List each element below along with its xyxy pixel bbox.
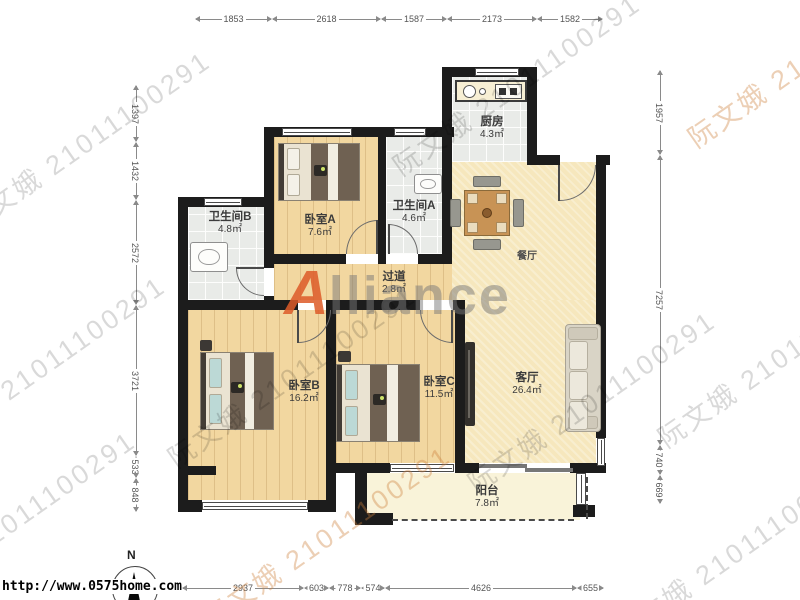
wall [178, 300, 298, 310]
wall [418, 254, 452, 264]
dimension-bottom: 2937 [182, 580, 304, 596]
bed-a [278, 143, 360, 201]
bedroom-a-door-leaf [376, 220, 378, 254]
dimension-left: 1397 [128, 85, 144, 142]
dimension-bottom: 778 [329, 580, 361, 596]
pillow [209, 358, 222, 387]
wall [178, 197, 188, 512]
room-label-balcony: 阳台7.8㎡ [452, 485, 522, 510]
floor-plan: 卫生间B4.8㎡ 卧室A7.6㎡ 卫生间A4.6㎡ 厨房4.3㎡ 餐厅 过道2.… [0, 0, 800, 600]
blanket-stripe [387, 365, 398, 441]
window [390, 464, 454, 472]
bedroom-b-door-leaf [297, 310, 299, 343]
chair [450, 199, 461, 227]
wall [178, 500, 202, 512]
dimension-right: 669 [652, 475, 668, 504]
pillow [345, 406, 358, 435]
wall [326, 300, 336, 512]
dimension-right: 740 [652, 445, 668, 475]
wall [573, 505, 595, 517]
room-label-kitchen: 厨房4.3㎡ [457, 116, 527, 141]
room-label-bedroom-b: 卧室B16.2㎡ [269, 380, 339, 405]
chair [473, 176, 501, 187]
room-label-hallway: 过道2.8㎡ [359, 271, 429, 296]
nightstand [338, 351, 351, 362]
blanket-stripe [245, 353, 254, 429]
sofa-cushion [569, 341, 588, 370]
bathroom-b-door-leaf [236, 267, 264, 269]
sofa-cushion [569, 371, 588, 400]
balcony-dashed-edge [586, 477, 588, 519]
sink-icon [463, 85, 476, 98]
watermark-text: 阮文娥 21011100291 [604, 450, 800, 600]
bed-decor [231, 382, 244, 393]
dimension-bottom: 574 [361, 580, 385, 596]
dimension-left: 3721 [128, 305, 144, 456]
nightstand [200, 340, 212, 351]
room-label-bathroom-a: 卫生间A4.6㎡ [379, 200, 449, 225]
pillow [209, 394, 222, 423]
dimension-top: 1587 [381, 11, 447, 27]
wall [527, 67, 537, 165]
dimension-right: 1957 [652, 70, 668, 155]
compass-north-label: N [127, 548, 136, 562]
wall [527, 155, 560, 165]
room-label-living: 客厅26.4㎡ [492, 372, 562, 397]
window [282, 128, 352, 136]
stove-icon [495, 84, 522, 99]
bed-decor [314, 165, 327, 176]
room-label-bedroom-c: 卧室C11.5㎡ [404, 376, 474, 401]
entry-door-leaf [558, 165, 560, 201]
room-label-bathroom-b: 卫生间B4.8㎡ [195, 211, 265, 236]
blanket-stripe [328, 144, 338, 200]
headboard [279, 144, 284, 200]
window [475, 68, 519, 76]
pillow [345, 370, 358, 399]
dimension-bottom: 603 [304, 580, 329, 596]
watermark-text: 阮文娥 21011100291 [0, 265, 173, 466]
dimension-top: 2173 [447, 11, 537, 27]
window [202, 502, 308, 510]
pillow [287, 174, 300, 196]
bathroom-b-vanity [190, 242, 228, 272]
dimension-right: 7257 [652, 155, 668, 445]
wall [465, 463, 479, 473]
pillow [287, 148, 300, 170]
dimension-left: 1432 [128, 142, 144, 200]
teapot-icon [482, 208, 492, 218]
dimension-left: 848 [128, 478, 144, 512]
dimension-top: 2618 [272, 11, 381, 27]
window [576, 473, 586, 505]
sink-icon [479, 88, 486, 95]
bathroom-a-vanity [414, 174, 442, 194]
dining-table-set [450, 176, 524, 250]
sofa [565, 324, 601, 432]
wall [308, 500, 336, 512]
dimension-top: 1853 [195, 11, 272, 27]
bed-b [200, 352, 274, 430]
chair [513, 199, 524, 227]
dimension-top: 1582 [537, 11, 603, 27]
balcony-dashed-edge [392, 519, 574, 521]
balcony-sliding-door [525, 468, 573, 472]
sofa-armrest [568, 327, 598, 340]
bedroom-c-door-leaf [451, 310, 453, 343]
plate [467, 193, 478, 204]
wall [264, 254, 346, 264]
dimension-bottom: 655 [577, 580, 604, 596]
wall [355, 513, 393, 525]
window [394, 128, 426, 136]
wall [188, 466, 216, 475]
dimension-bottom: 4626 [385, 580, 577, 596]
sofa-cushion [569, 401, 588, 430]
room-label-dining: 餐厅 [497, 251, 557, 263]
window [204, 198, 242, 206]
site-url: http://www.0575home.com [2, 579, 182, 594]
plate [496, 193, 507, 204]
plate [467, 222, 478, 233]
balcony-sliding-door [479, 464, 527, 468]
bathroom-a-door-leaf [388, 224, 390, 254]
bed-decor [373, 394, 386, 405]
headboard [201, 353, 206, 429]
watermark-text: 阮文娥 21011100291 [679, 0, 800, 155]
plate [496, 222, 507, 233]
wall [330, 463, 390, 473]
dimension-left: 2572 [128, 200, 144, 305]
room-label-bedroom-a: 卧室A7.6㎡ [285, 214, 355, 239]
chair [473, 239, 501, 250]
window [597, 438, 605, 466]
wall [378, 127, 386, 264]
dimension-left: 533 [128, 456, 144, 478]
kitchen-counter [455, 80, 527, 102]
wall [332, 300, 420, 310]
watermark-text: 阮文娥 21011100291 [649, 255, 800, 456]
